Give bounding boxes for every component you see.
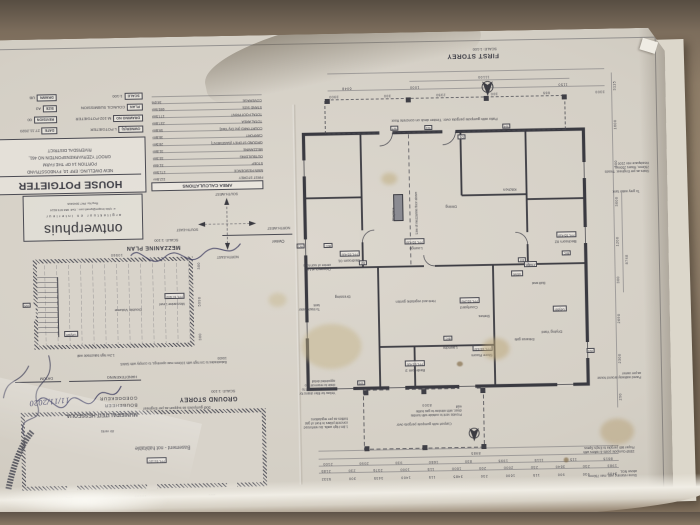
tag-w6: W6 xyxy=(357,380,365,386)
dim-south-total: 8985 xyxy=(471,450,481,454)
note-balustrade: Balustrades to 1m high with 100mm max op… xyxy=(115,355,227,365)
dim-north-total: 11100 xyxy=(478,74,490,78)
ground-storey-title: GROUND STOREY xyxy=(179,394,237,402)
room-label-dressing: Dressing xyxy=(335,294,351,299)
tag-w3: W3 xyxy=(586,347,594,353)
firm-contact: e: rykie.kruger@gmail.com ; Cell: 083 97… xyxy=(24,206,142,212)
firm-tagline: argitektuur en interieur xyxy=(24,212,142,218)
compass-icon xyxy=(196,195,259,252)
note-gumpole-support: 50Ø gumpoles as support as per Engineer xyxy=(143,404,211,409)
ffl-bedroom1: FFL 65.430 xyxy=(339,251,359,257)
tag-w5: W5 xyxy=(22,302,30,308)
tag-bic-1: BIC xyxy=(562,250,571,256)
note-chimney: Chimney's at 1m centre of roof ridge xyxy=(297,262,331,270)
project-line-2: PORTION 14 OF THE FARM xyxy=(0,160,145,167)
tag-w4: W4 xyxy=(502,123,510,129)
first-storey-scale: SCALE: 1:100 xyxy=(473,47,497,52)
tag-d3: D3 xyxy=(518,257,526,263)
room-label-courtyard: Courtyard xyxy=(460,305,478,310)
project-title-block: HOUSE POTGIETER NEW DWELLING: ERF 10, FY… xyxy=(0,136,146,195)
label-fridge: Fridge xyxy=(524,261,537,267)
room-label-bedroom2: Bedroom 02 xyxy=(555,239,577,244)
project-line-3: GROOT YZERVARKENSFONTEIN NO 461, xyxy=(0,153,145,160)
note-filter-drains: Yellow for filter drains for rainwater c… xyxy=(297,378,335,394)
title-row-scale: SCALE1:100 xyxy=(63,93,143,102)
mezzanine-w5-opening xyxy=(31,306,36,320)
label-geyser-yard: Geyser xyxy=(552,306,566,312)
title-table-right: DATE27.11.2020 REVISION00 SIZEA3 DRAWNUB xyxy=(1,90,58,135)
ffl-bedroom2: FFL 65.430 xyxy=(556,232,576,238)
room-label-fireplace: Fireplace xyxy=(392,208,396,221)
title-row-revision: REVISION00 xyxy=(1,116,57,124)
room-label-drying-yard: Drying Yard xyxy=(541,329,562,334)
paper-speck xyxy=(564,457,569,462)
photo-of-building-plan: Lounge FFL 65.430 Dining Kitchen Line of… xyxy=(0,0,700,525)
label-built-seat: Built seat xyxy=(532,280,545,284)
title-row-size: SIZEA3 xyxy=(1,105,57,113)
room-label-dining: Dining xyxy=(445,204,456,209)
tag-w7: W7 xyxy=(390,125,398,131)
room-label-kitchen: Kitchen xyxy=(503,187,516,192)
firm-logo-block: ontwerphuis argitektuur en interieur e: … xyxy=(23,194,144,242)
ffl-bedroom3: FFL 65.430 xyxy=(405,361,425,367)
note-pergola-posts: 150Ø Gumpole posts & rafters with Floper… xyxy=(578,444,634,453)
note-balustrade-wall: 1.2m high balustrade wall xyxy=(77,352,114,356)
ffl-courtyard: FFL 65.240 xyxy=(459,298,479,304)
firm-reg: Reg No: PA7 3043416 xyxy=(24,200,142,206)
label-stove: Stove xyxy=(511,271,523,277)
paper-speck xyxy=(457,361,463,366)
ffl-mezzanine: FFL 67.600 xyxy=(164,293,184,299)
room-label-bedroom1: Bedroom 01 xyxy=(338,258,360,263)
project-line-4: RIVERSDAL DISTRICT xyxy=(0,146,145,153)
plan-sheet: Lounge FFL 65.430 Dining Kitchen Line of… xyxy=(0,27,673,510)
label-double-volume: Double Volume xyxy=(115,307,142,312)
table-shadow-strip xyxy=(0,512,700,525)
label-entrance-gate: Entrance gate xyxy=(514,337,534,341)
project-title: HOUSE POTGIETER xyxy=(0,177,145,191)
room-label-laundry: Laundry xyxy=(443,345,458,350)
owner-label: Owner xyxy=(272,238,284,243)
tag-bic-3: BIC xyxy=(444,335,453,341)
label-geyser-mezz: Geyser xyxy=(64,331,78,337)
title-row-drawn: DRAWNUB xyxy=(1,94,57,102)
ground-storey-scale: SCALE: 1:100 xyxy=(211,389,235,394)
tag-bic-2: BIC xyxy=(324,242,333,248)
compass-label-right: SOUTH-EAST xyxy=(176,227,198,231)
title-table-left: OWNER(S)L POTGIETER DRAWING NOM-102-POTG… xyxy=(63,89,144,135)
dim-mezz-total: 10560 xyxy=(110,252,122,256)
title-row-drawing-no: DRAWING NOM-102-POTGIETER xyxy=(63,115,143,124)
tag-d2: D2 xyxy=(359,260,367,266)
label-mezzanine-level: Mezzanine Level xyxy=(159,301,185,305)
ffl-lounge: FFL 65.430 xyxy=(404,239,424,245)
note-grey-water: To grey water tank xyxy=(606,188,640,193)
room-label-bedroom3: Bedroom 3 xyxy=(405,368,425,373)
dim-east-total: 8748 xyxy=(626,254,630,264)
tag-d1: D1 xyxy=(458,134,466,140)
note-laundry-vent: Provide vent to outside with tumble drye… xyxy=(410,404,462,417)
room-label-lounge: Lounge xyxy=(409,246,422,251)
firm-name: ontwerphuis xyxy=(24,220,142,238)
note-gas-walls: 1.8m High walls. As reinforced concrete … xyxy=(302,416,348,429)
label-shelves: Shelves xyxy=(479,313,490,317)
title-row-plan: PLANCOUNCIL SUBMISSION xyxy=(63,104,143,113)
label-herb-garden: Herb and vegetable garden xyxy=(396,298,436,303)
title-row-date: DATE27.11.2020 xyxy=(1,127,57,135)
mezzanine-stairs xyxy=(37,277,59,337)
compass-label-left: NORTH-WEST xyxy=(267,225,290,229)
tag-w2: W2 xyxy=(424,125,432,131)
